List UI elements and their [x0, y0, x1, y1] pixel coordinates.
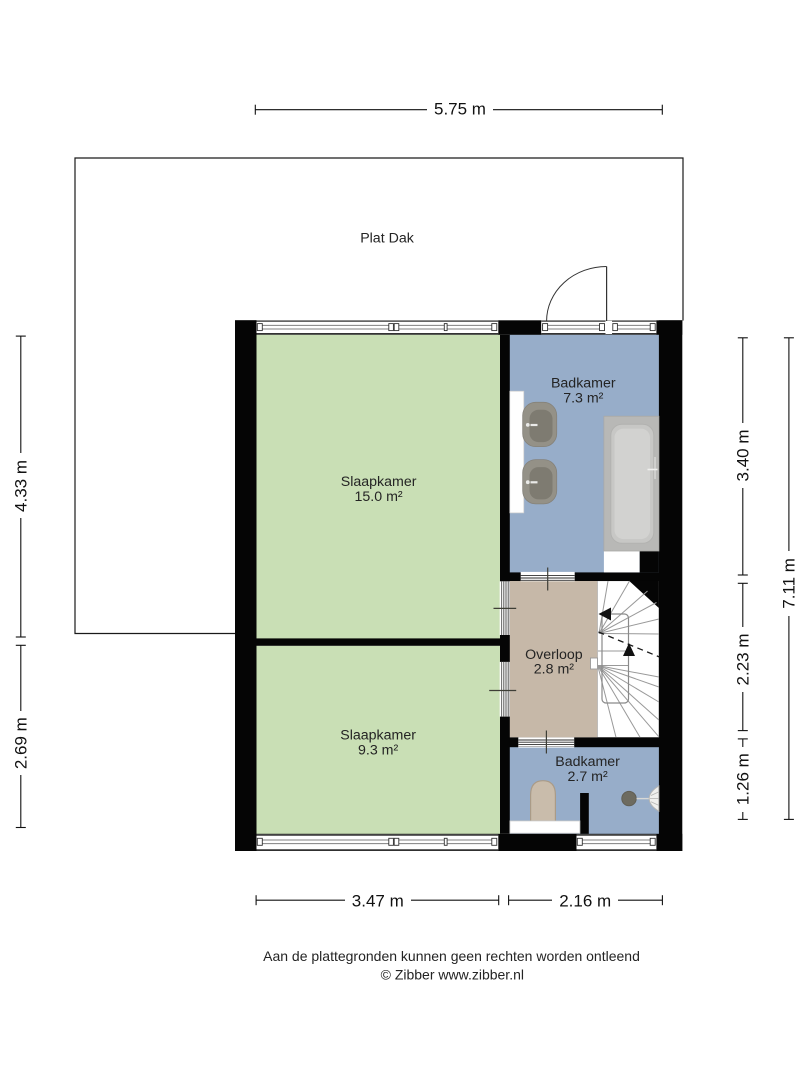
svg-text:2.8 m²: 2.8 m²: [534, 662, 574, 678]
svg-text:15.0 m²: 15.0 m²: [355, 489, 403, 505]
svg-text:Slaapkamer: Slaapkamer: [340, 728, 416, 744]
svg-text:Plat Dak: Plat Dak: [360, 231, 415, 247]
svg-text:5.75 m: 5.75 m: [434, 100, 486, 119]
svg-text:3.40 m: 3.40 m: [734, 430, 753, 482]
svg-text:3.47 m: 3.47 m: [352, 891, 404, 910]
svg-text:7.3 m²: 7.3 m²: [563, 390, 603, 406]
svg-text:Aan de plattegronden kunnen ge: Aan de plattegronden kunnen geen rechten…: [263, 948, 640, 964]
svg-text:4.33 m: 4.33 m: [12, 460, 31, 512]
svg-text:2.23 m: 2.23 m: [734, 634, 753, 686]
svg-text:2.69 m: 2.69 m: [12, 717, 31, 769]
svg-text:1.26 m: 1.26 m: [734, 753, 753, 805]
svg-text:2.16 m: 2.16 m: [559, 891, 611, 910]
svg-text:7.11 m: 7.11 m: [780, 558, 799, 609]
svg-text:Overloop: Overloop: [525, 647, 583, 663]
svg-text:9.3 m²: 9.3 m²: [358, 742, 398, 758]
svg-text:2.7 m²: 2.7 m²: [567, 769, 607, 785]
svg-text:Badkamer: Badkamer: [551, 376, 616, 392]
svg-text:© Zibber www.zibber.nl: © Zibber www.zibber.nl: [381, 966, 524, 982]
svg-text:Slaapkamer: Slaapkamer: [341, 474, 417, 490]
svg-text:Badkamer: Badkamer: [555, 754, 620, 770]
